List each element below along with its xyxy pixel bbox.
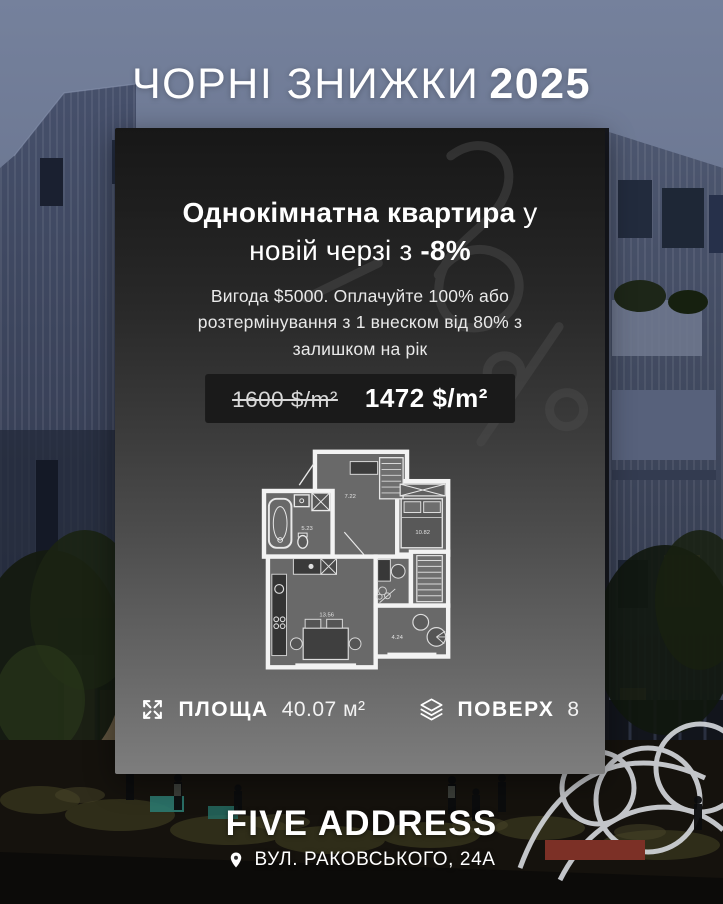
bedroom-furniture [400, 484, 445, 548]
stat-floor: ПОВЕРХ 8 [418, 696, 580, 723]
floor-value: 8 [567, 698, 579, 722]
niche-shelving [417, 556, 442, 602]
room-area-label: 4.24 [392, 635, 404, 641]
location-pin-icon [227, 850, 245, 870]
footer-address: ВУЛ. РАКОВСЬКОГО, 24А [254, 849, 495, 871]
promo-poster: ЧОРНІ ЗНИЖКИ2025 Однокімнатна квартира у… [0, 0, 723, 904]
footer: FIVE ADDRESS ВУЛ. РАКОВСЬКОГО, 24А [0, 804, 723, 871]
promo-card: Однокімнатна квартира у новій черзі з -8… [115, 128, 605, 774]
floorplan: 7.22 5.23 10.82 13.56 4.24 [248, 442, 472, 682]
card-description: Вигода $5000. Оплачуйте 100% або розтерм… [159, 283, 561, 362]
stat-area: ПЛОЩА 40.07 м² [140, 697, 365, 722]
floor-label: ПОВЕРХ [458, 698, 555, 722]
card-heading-bold: Однокімнатна квартира [183, 197, 516, 228]
price-new: 1472 $/m² [365, 383, 488, 414]
footer-brand: FIVE ADDRESS [0, 804, 723, 844]
room-area-label: 10.82 [415, 530, 430, 536]
layers-icon [418, 696, 445, 723]
room-area-label: 13.56 [319, 612, 334, 618]
area-label: ПЛОЩА [178, 698, 268, 722]
stats-row: ПЛОЩА 40.07 м² ПОВЕРХ 8 [115, 696, 605, 723]
page-title: ЧОРНІ ЗНИЖКИ2025 [0, 60, 723, 109]
area-value: 40.07 м² [282, 698, 366, 722]
page-title-main: ЧОРНІ ЗНИЖКИ [132, 60, 479, 108]
footer-address-row: ВУЛ. РАКОВСЬКОГО, 24А [0, 849, 723, 871]
page-title-year: 2025 [489, 60, 591, 108]
discount-value: -8% [420, 235, 470, 266]
expand-icon [140, 697, 165, 722]
price-box: 1600 $/m² 1472 $/m² [205, 374, 515, 423]
room-area-label: 7.22 [345, 494, 356, 500]
card-heading: Однокімнатна квартира у новій черзі з -8… [115, 194, 605, 269]
price-old: 1600 $/m² [232, 387, 338, 413]
room-area-label: 5.23 [301, 526, 312, 532]
